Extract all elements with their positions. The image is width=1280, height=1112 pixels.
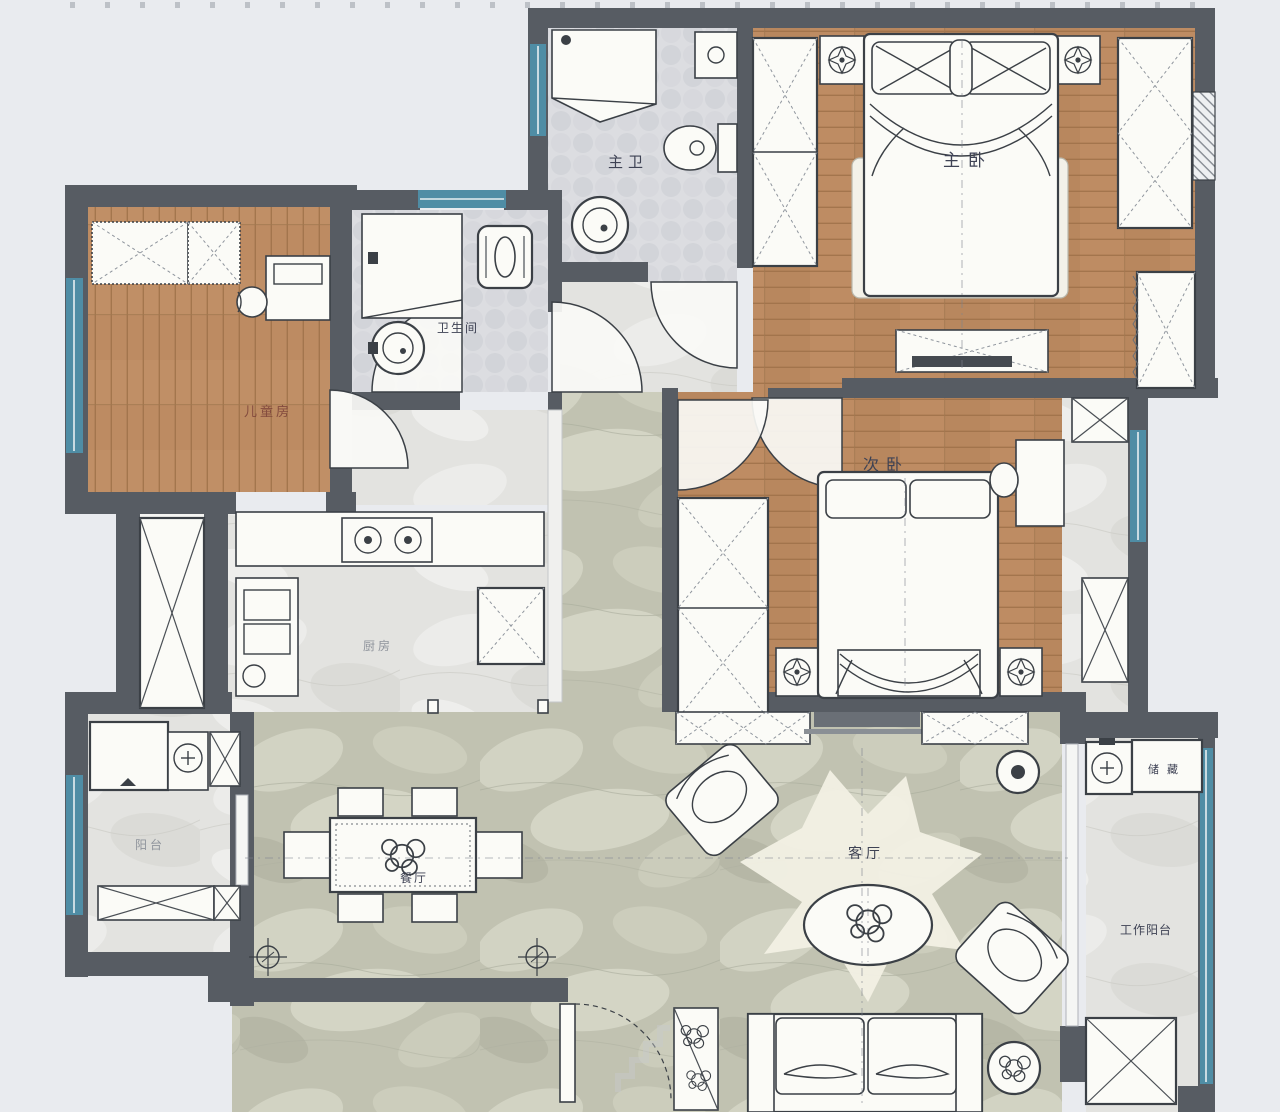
dining-bench — [476, 832, 522, 878]
daybed-cushions — [92, 222, 240, 284]
laundry-sink — [1086, 738, 1132, 794]
bed — [818, 472, 998, 698]
label-kids-room: 儿童房 — [244, 404, 292, 420]
balcony-column — [210, 732, 240, 786]
label-master-bath: 主卫 — [608, 153, 648, 171]
tv-cabinet — [896, 330, 1048, 372]
label-kitchen: 厨房 — [363, 638, 393, 653]
label-living-room: 客厅 — [848, 845, 884, 862]
window-right-corridor — [1130, 430, 1146, 542]
tv-icon — [814, 712, 920, 727]
label-second-bedroom: 次卧 — [863, 455, 909, 474]
dining-chair — [338, 894, 383, 922]
planter-box — [674, 1008, 718, 1110]
dining-chair — [338, 788, 383, 816]
nightstand-left — [776, 648, 818, 696]
side-table-plant — [988, 1042, 1040, 1094]
fridge — [478, 588, 544, 664]
wardrobe — [753, 38, 817, 266]
label-master-bedroom: 主卧 — [943, 151, 993, 171]
mirror-niche — [478, 226, 532, 288]
floor-lamp — [997, 751, 1039, 793]
sofa — [748, 1014, 982, 1112]
label-work-balcony: 工作阳台 — [1120, 922, 1172, 937]
window-bathroom — [418, 190, 506, 208]
dining-chair — [412, 788, 457, 816]
balcony-sink — [168, 732, 208, 790]
toilet — [664, 124, 737, 172]
kitchen-sink — [236, 578, 298, 696]
shower-head-icon — [368, 252, 378, 264]
window-master-bath — [530, 44, 546, 136]
pantry-closet — [140, 518, 204, 708]
window-kids-room — [66, 278, 83, 453]
dining-bench — [284, 832, 330, 878]
closet-mid-right — [1133, 272, 1195, 388]
window-work-balcony — [1200, 748, 1213, 1084]
shower-head-icon — [561, 35, 571, 45]
floor-plan: 主卫 主卧 卫生间 儿童房 次卧 厨房 阳台 餐厅 客厅 储藏 工作阳台 — [0, 0, 1280, 1112]
nightstand-left — [820, 36, 864, 84]
hall-strip-floor — [548, 392, 662, 712]
cooktop — [342, 518, 432, 562]
column-hatched — [1193, 92, 1215, 180]
window-balcony — [66, 775, 83, 915]
washing-machine — [90, 722, 168, 790]
dining-chair — [412, 894, 457, 922]
label-dining-room: 餐厅 — [400, 870, 428, 885]
floor-plan-canvas: 主卫 主卧 卫生间 儿童房 次卧 厨房 阳台 餐厅 客厅 储藏 工作阳台 — [0, 0, 1280, 1112]
balcony-cabinets — [98, 886, 240, 920]
wardrobe — [678, 498, 768, 718]
pedestal-basin — [572, 197, 628, 253]
bath-shelf — [695, 32, 737, 78]
label-storage-cabinet: 储藏 — [1148, 762, 1186, 776]
nightstand-right — [1056, 36, 1100, 84]
coffee-table — [804, 885, 932, 965]
nightstand-right — [1000, 648, 1042, 696]
label-balcony: 阳台 — [135, 837, 165, 852]
closet-top-right — [1118, 38, 1192, 228]
drying-rack — [1086, 1018, 1176, 1104]
label-bathroom: 卫生间 — [437, 321, 479, 335]
